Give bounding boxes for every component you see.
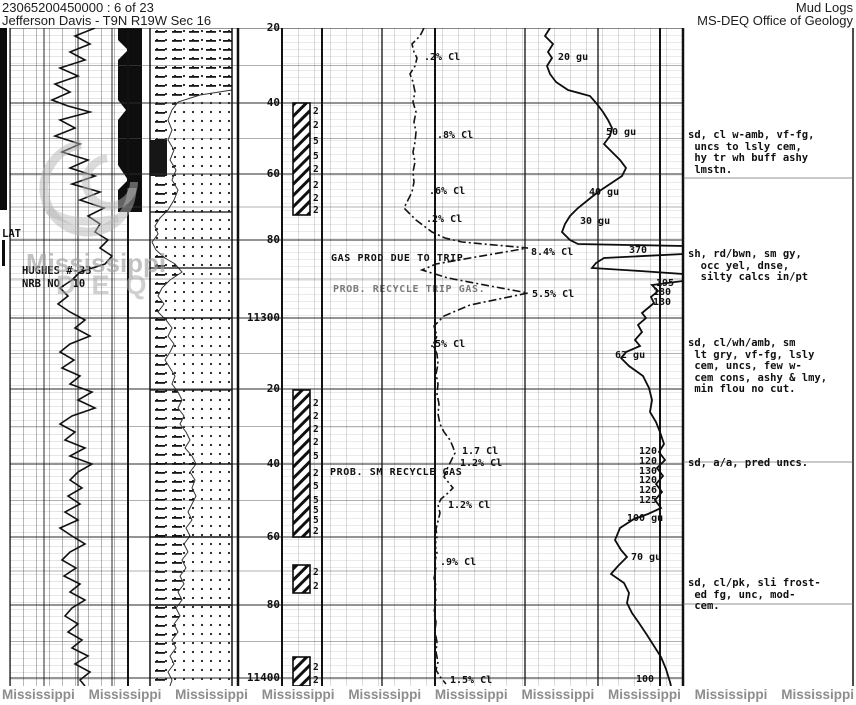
description-line: hy tr wh buff ashy <box>688 153 853 165</box>
description-line: cem, uncs, few w- <box>688 361 853 373</box>
show-bar-count: 5 <box>313 452 319 462</box>
depth-tick-label: 60 <box>228 531 280 543</box>
well-id-label: HUGHES #-33 <box>22 266 92 277</box>
watermark-text-mississippi: Mississippi <box>89 686 162 705</box>
show-bar-count: 2 <box>313 676 319 686</box>
show-bar-count: 5 <box>313 482 319 492</box>
gas-units-label: 70 gu <box>631 553 661 563</box>
watermark-text-mississippi: Mississippi <box>608 686 681 705</box>
description-line: min flou no cut. <box>688 384 853 396</box>
watermark-text-mississippi: Mississippi <box>2 686 75 705</box>
bottom-watermark-row: MississippiMississippiMississippiMississ… <box>0 686 856 705</box>
description-line: sh, rd/bwn, sm gy, <box>688 249 853 261</box>
show-bar-count: 2 <box>313 181 319 191</box>
depth-tick-label: 11400 <box>228 672 280 684</box>
description-line: lmstn. <box>688 165 853 177</box>
well-id-label: NRB NO. 10 <box>22 279 85 290</box>
show-bar-count: 5 <box>313 137 319 147</box>
gas-units-label: 100 <box>636 675 654 685</box>
show-bar-count: 2 <box>313 582 319 592</box>
depth-tick-label: 40 <box>228 97 280 109</box>
gas-show-annotation: PROB. SM RECYCLE GAS <box>330 467 462 478</box>
lithology-description: sd, cl/wh/amb, sm lt gry, vf-fg, lsly ce… <box>688 338 853 396</box>
page-header: 23065200450000 : 6 of 23 Jefferson Davis… <box>0 0 856 28</box>
show-bar-count: 5 <box>313 152 319 162</box>
well-id-label: LAT <box>2 229 21 240</box>
depth-tick-label: 60 <box>228 168 280 180</box>
gas-units-label: 62 gu <box>615 351 645 361</box>
show-bar-count: 2 <box>313 412 319 422</box>
lithology-description: sh, rd/bwn, sm gy, occ yel, dnse, silty … <box>688 249 853 284</box>
gas-show-annotation: PROB. RECYCLE TRIP GAS. <box>333 284 485 295</box>
description-line: sd, cl/pk, sli frost- <box>688 578 853 590</box>
gas-units-label: 20 gu <box>558 53 588 63</box>
lithology-description: sd, cl/pk, sli frost- ed fg, unc, mod- c… <box>688 578 853 613</box>
chloride-value-label: 1.5% Cl <box>450 676 492 686</box>
depth-tick-label: 20 <box>228 383 280 395</box>
show-bar-count: 2 <box>313 165 319 175</box>
gas-units-label: 40 gu <box>589 188 619 198</box>
lithology-description: sd, a/a, pred uncs. <box>688 458 853 470</box>
description-line: sd, cl w-amb, vf-fg, <box>688 130 853 142</box>
chloride-value-label: 8.4% Cl <box>531 248 573 258</box>
show-bar-count: 2 <box>313 663 319 673</box>
chloride-value-label: .2% Cl <box>424 53 460 63</box>
gas-units-label: 30 gu <box>580 217 610 227</box>
chloride-value-label: 5.5% Cl <box>532 290 574 300</box>
watermark-text-mississippi: Mississippi <box>435 686 508 705</box>
show-bar-count: 2 <box>313 399 319 409</box>
show-bar-count: 2 <box>313 206 319 216</box>
depth-tick-label: 11300 <box>228 312 280 324</box>
description-line: sd, a/a, pred uncs. <box>688 458 853 470</box>
watermark-text-mississippi: Mississippi <box>262 686 335 705</box>
gas-units-label: 100 gu <box>627 514 663 524</box>
description-line: silty calcs in/pt <box>688 272 853 284</box>
gas-clipped-value: 370 <box>629 246 647 256</box>
document-location: Jefferson Davis - T9N R19W Sec 16 <box>2 14 211 27</box>
depth-tick-label: 80 <box>228 234 280 246</box>
description-line: sd, cl/wh/amb, sm <box>688 338 853 350</box>
show-bar-count: 2 <box>313 568 319 578</box>
show-bar-count: 2 <box>313 469 319 479</box>
description-line: cem. <box>688 601 853 613</box>
show-bar-count: 5 <box>313 516 319 526</box>
chloride-value-label: 1.2% Cl <box>448 501 490 511</box>
depth-tick-label: 40 <box>228 458 280 470</box>
chloride-value-label: .6% Cl <box>429 187 465 197</box>
gas-clipped-value: 125 <box>639 496 657 506</box>
chloride-value-label: 1.2% Cl <box>460 459 502 469</box>
mud-log-page: 23065200450000 : 6 of 23 Jefferson Davis… <box>0 0 856 705</box>
watermark-text-mississippi: Mississippi <box>695 686 768 705</box>
show-bar-count: 2 <box>313 107 319 117</box>
gas-show-annotation: GAS PROD DUE TO TRIP <box>331 253 463 264</box>
chloride-value-label: 1.7 Cl <box>462 447 498 457</box>
gas-clipped-value: 130 <box>653 298 671 308</box>
show-bar-count: 2 <box>313 527 319 537</box>
watermark-text-mississippi: Mississippi <box>781 686 854 705</box>
chloride-value-label: .2% Cl <box>426 215 462 225</box>
depth-tick-label: 80 <box>228 599 280 611</box>
chloride-value-label: .8% Cl <box>437 131 473 141</box>
show-bar-count: 2 <box>313 194 319 204</box>
chloride-value-label: .5% Cl <box>429 340 465 350</box>
scan-text-overlay: 2040608011300204060801140022552222222252… <box>0 0 856 705</box>
show-bar-count: 2 <box>313 438 319 448</box>
chloride-value-label: .9% Cl <box>440 558 476 568</box>
show-bar-count: 2 <box>313 425 319 435</box>
watermark-text-mississippi: Mississippi <box>348 686 421 705</box>
lithology-description: sd, cl w-amb, vf-fg, uncs to lsly cem, h… <box>688 130 853 176</box>
gas-units-label: 50 gu <box>606 128 636 138</box>
document-office: MS-DEQ Office of Geology <box>697 14 853 27</box>
watermark-text-mississippi: Mississippi <box>175 686 248 705</box>
watermark-text-mississippi: Mississippi <box>521 686 594 705</box>
show-bar-count: 2 <box>313 121 319 131</box>
